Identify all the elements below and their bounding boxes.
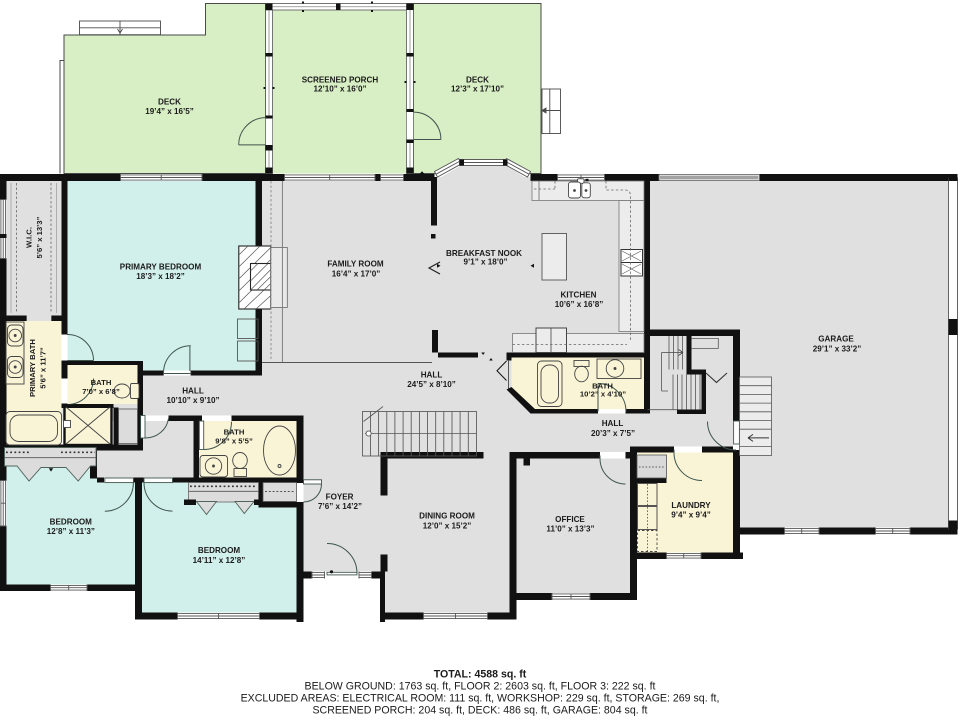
svg-text:7’0” x 6’8”: 7’0” x 6’8” xyxy=(82,387,120,396)
svg-text:10’2” x 4’10”: 10’2” x 4’10” xyxy=(580,390,626,399)
svg-text:EXCLUDED AREAS: ELECTRICAL ROO: EXCLUDED AREAS: ELECTRICAL ROOM: 111 sq.… xyxy=(241,693,720,705)
svg-text:HALL: HALL xyxy=(182,387,204,396)
svg-text:10’10” x 9’10”: 10’10” x 9’10” xyxy=(166,396,219,405)
svg-text:DINING ROOM: DINING ROOM xyxy=(419,512,475,521)
svg-text:12’3” x 17’10”: 12’3” x 17’10” xyxy=(451,85,504,94)
svg-text:18’3” x 18’2”: 18’3” x 18’2” xyxy=(136,272,185,281)
svg-text:HALL: HALL xyxy=(421,371,443,380)
svg-text:BATH: BATH xyxy=(224,428,245,437)
svg-text:SCREENED PORCH: 204 sq. ft, DE: SCREENED PORCH: 204 sq. ft, DECK: 486 sq… xyxy=(312,705,647,717)
svg-text:PRIMARY BEDROOM: PRIMARY BEDROOM xyxy=(120,263,202,272)
svg-text:BEDROOM: BEDROOM xyxy=(50,518,93,527)
svg-text:GARAGE: GARAGE xyxy=(818,335,854,344)
svg-text:BELOW GROUND: 1763 sq. ft, FLO: BELOW GROUND: 1763 sq. ft, FLOOR 2: 2603… xyxy=(305,681,656,693)
svg-text:12’10” x 16’0”: 12’10” x 16’0” xyxy=(313,85,366,94)
svg-text:14’11” x 12’8”: 14’11” x 12’8” xyxy=(193,556,246,565)
svg-text:OFFICE: OFFICE xyxy=(555,515,585,524)
svg-text:16’4” x 17’0”: 16’4” x 17’0” xyxy=(332,270,381,279)
svg-text:HALL: HALL xyxy=(602,419,624,428)
svg-text:LAUNDRY: LAUNDRY xyxy=(671,501,711,510)
svg-text:9’4” x 9’4”: 9’4” x 9’4” xyxy=(671,511,711,520)
svg-text:TOTAL: 4588 sq. ft: TOTAL: 4588 sq. ft xyxy=(434,669,527,681)
svg-text:19’4” x 16’5”: 19’4” x 16’5” xyxy=(145,107,194,116)
svg-text:DECK: DECK xyxy=(158,98,181,107)
svg-text:9’1” x 18’0”: 9’1” x 18’0” xyxy=(463,258,507,267)
svg-text:W.I.C.: W.I.C. xyxy=(24,227,33,248)
svg-text:12’8” x 11’3”: 12’8” x 11’3” xyxy=(47,527,95,536)
svg-text:BEDROOM: BEDROOM xyxy=(198,546,241,555)
svg-text:7’6” x 14’2”: 7’6” x 14’2” xyxy=(318,502,362,511)
svg-text:PRIMARY BATH: PRIMARY BATH xyxy=(28,339,37,397)
svg-text:KITCHEN: KITCHEN xyxy=(561,291,597,300)
svg-text:11’0” x 13’3”: 11’0” x 13’3” xyxy=(546,525,594,534)
svg-text:5’6” x 11’7”: 5’6” x 11’7” xyxy=(39,347,48,389)
svg-text:FAMILY ROOM: FAMILY ROOM xyxy=(327,260,383,269)
svg-text:20’3” x 7’5”: 20’3” x 7’5” xyxy=(591,429,635,438)
svg-text:9’8” x 5’5”: 9’8” x 5’5” xyxy=(215,437,253,446)
svg-text:DECK: DECK xyxy=(466,76,489,85)
svg-text:5’6” x 13’3”: 5’6” x 13’3” xyxy=(35,216,44,258)
svg-text:FOYER: FOYER xyxy=(326,493,354,502)
svg-text:SCREENED PORCH: SCREENED PORCH xyxy=(302,76,379,85)
svg-text:BATH: BATH xyxy=(91,378,112,387)
svg-text:29’1” x 33’2”: 29’1” x 33’2” xyxy=(813,345,862,354)
svg-text:24’5” x 8’10”: 24’5” x 8’10” xyxy=(407,380,456,389)
svg-text:12’0” x 15’2”: 12’0” x 15’2” xyxy=(423,521,472,530)
svg-text:10’6” x 16’8”: 10’6” x 16’8” xyxy=(555,300,604,309)
